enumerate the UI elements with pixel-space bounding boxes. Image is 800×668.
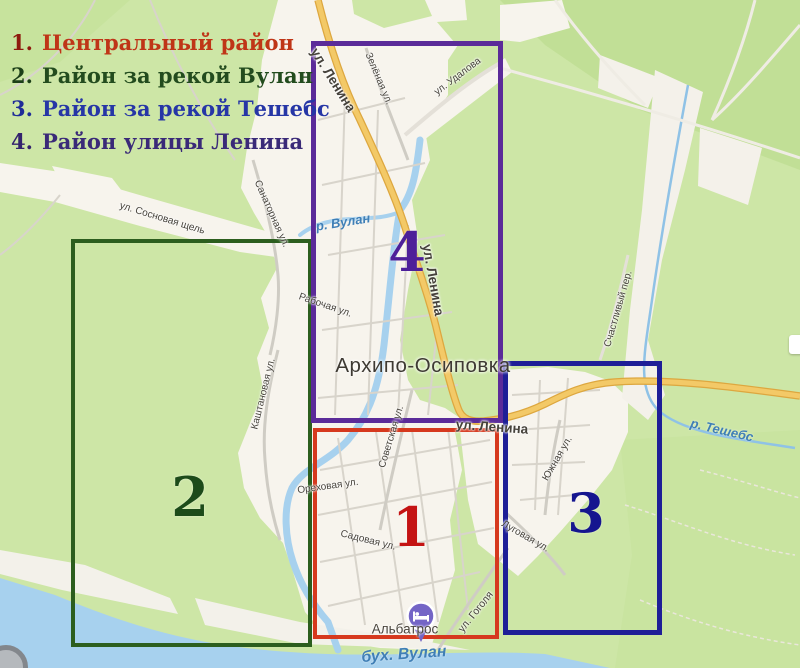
legend-item-1: 1.Центральный район: [11, 32, 294, 53]
legend-item-4-number: 4.: [11, 131, 33, 152]
legend-item-3: 3.Район за рекой Тешебс: [11, 98, 330, 119]
poi-label-albatros[interactable]: Альбатрос: [372, 622, 439, 637]
district-1-number: 1: [392, 500, 430, 554]
legend-item-4: 4.Район улицы Ленина: [11, 131, 303, 152]
legend-item-2-number: 2.: [11, 65, 33, 86]
district-4-number: 4: [388, 225, 426, 279]
legend-item-2: 2.Район за рекой Вулан: [11, 65, 313, 86]
district-2-box: [71, 239, 312, 647]
map-canvas[interactable]: 1 2 3 4 1.Центральный район 2.Район за р…: [0, 0, 800, 668]
town-name-label: Архипо-Осиповка: [335, 356, 510, 377]
district-2-number: 2: [171, 470, 209, 524]
legend-item-1-number: 1.: [11, 32, 33, 53]
legend-item-1-label: Центральный район: [42, 30, 294, 55]
bed-pillow: [415, 612, 419, 616]
district-3-number: 3: [567, 486, 605, 540]
bed-mattress: [414, 616, 428, 620]
legend-item-3-label: Район за рекой Тешебс: [42, 96, 330, 121]
legend-item-3-number: 3.: [11, 98, 33, 119]
map-control-button[interactable]: [789, 335, 800, 354]
legend-item-4-label: Район улицы Ленина: [42, 129, 303, 154]
legend-item-2-label: Район за рекой Вулан: [42, 63, 313, 88]
